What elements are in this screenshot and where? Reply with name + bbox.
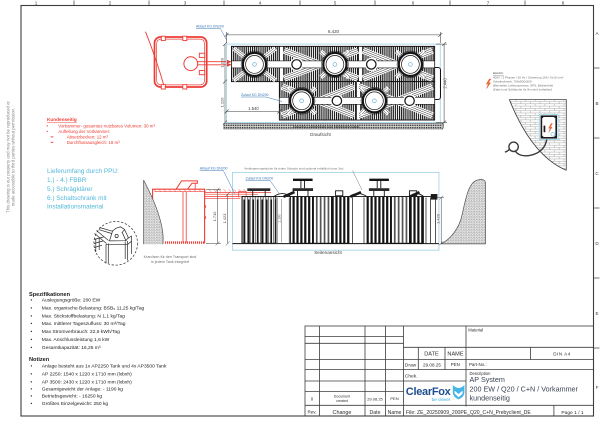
svg-text:[Kabel und Schläuche für 8m si: [Kabel und Schläuche für 8m sind enthalt… <box>493 88 552 92</box>
svg-text:NAME: NAME <box>447 351 463 357</box>
svg-text:Aufteilung der Vorkammer:: Aufteilung der Vorkammer: <box>58 129 110 134</box>
svg-text:Auslegungsgröße: 200 EW: Auslegungsgröße: 200 EW <box>42 298 101 304</box>
svg-text:Durchflussausgleich: 18 m³: Durchflussausgleich: 18 m³ <box>67 140 120 145</box>
svg-text:8: 8 <box>562 0 565 5</box>
svg-text:Betriebsgewicht: - 16250 kg: Betriebsgewicht: - 16250 kg <box>42 394 103 400</box>
svg-text:DIN A4: DIN A4 <box>553 351 571 356</box>
svg-text:Draufsicht: Draufsicht <box>310 132 331 137</box>
svg-text:1.423: 1.423 <box>222 214 227 224</box>
svg-text:3: 3 <box>184 0 187 5</box>
svg-text:Max Stromverbrauch: 22,5 kWh/T: Max Stromverbrauch: 22,5 kWh/Tag <box>42 329 120 335</box>
svg-text:1.190: 1.190 <box>277 214 281 223</box>
svg-text:Max. mittlerer Tageszufluss: 3: Max. mittlerer Tageszufluss: 30 m³/Tag <box>42 321 126 327</box>
svg-text:•: • <box>31 338 33 343</box>
svg-text:Verlängerungsstücke für jeden: Verlängerungsstücke für jeden Schacht si… <box>244 166 343 170</box>
svg-text:1.420: 1.420 <box>435 213 440 224</box>
svg-text:be clever: be clever <box>432 397 451 402</box>
svg-text:••: •• <box>51 134 55 139</box>
svg-text:•: • <box>31 388 33 393</box>
svg-text:Name: Name <box>388 410 402 416</box>
svg-text:29.08.25: 29.08.25 <box>367 396 383 401</box>
svg-text:1.220: 1.220 <box>220 57 225 68</box>
svg-text:•: • <box>47 129 49 134</box>
svg-text:AP 3500: 2430 x 1220 x 1710 mm: AP 3500: 2430 x 1220 x 1710 mm (lxbxh) <box>42 379 132 385</box>
svg-text:Größtes Einzelgewicht: 250 kg: Größtes Einzelgewicht: 250 kg <box>42 401 109 407</box>
svg-text:kundenseitig: kundenseitig <box>470 394 510 403</box>
svg-text:AP 2250: 1540 x 1220 x 1710 mm: AP 2250: 1540 x 1220 x 1710 mm (lxbxh) <box>42 372 132 378</box>
svg-text:Max. Anschlussleistung 1,6 kW: Max. Anschlussleistung 1,6 kW <box>42 337 110 343</box>
svg-text:Rev.: Rev. <box>307 410 316 415</box>
svg-text:Draw: Draw <box>405 363 417 369</box>
svg-text:•: • <box>31 314 33 319</box>
svg-text:7: 7 <box>487 0 490 5</box>
svg-text:•: • <box>31 365 33 370</box>
svg-text:••: •• <box>51 140 55 145</box>
svg-text:PEN: PEN <box>390 396 398 401</box>
svg-text:in jedem Tank integriert: in jedem Tank integriert <box>151 260 189 264</box>
svg-text:Date: Date <box>370 410 381 416</box>
svg-text:B: B <box>595 101 598 106</box>
svg-text:Absetzbecken: 12 m³: Absetzbecken: 12 m³ <box>67 134 109 139</box>
svg-text:1.220: 1.220 <box>220 97 225 108</box>
svg-text:created: created <box>336 399 348 403</box>
svg-text:made accessible to third parti: made accessible to third parties without… <box>11 108 16 206</box>
svg-text:2: 2 <box>109 0 112 5</box>
svg-text:1.) - 4.) FBBR: 1.) - 4.) FBBR <box>47 177 87 184</box>
svg-text:0: 0 <box>311 396 314 401</box>
svg-text:•: • <box>31 322 33 327</box>
svg-text:F: F <box>596 385 599 390</box>
svg-text:File: ZE_20250909_200PE_Q20_C: File: ZE_20250909_200PE_Q20_C+N_Prebycli… <box>406 410 531 416</box>
svg-text:PEN: PEN <box>451 362 460 367</box>
svg-text:•: • <box>31 299 33 304</box>
svg-text:AP System: AP System <box>470 375 505 384</box>
svg-text:Seitenansicht: Seitenansicht <box>314 250 342 255</box>
svg-text:•: • <box>47 123 49 128</box>
svg-text:Chek.: Chek. <box>405 374 418 380</box>
svg-text:6.420: 6.420 <box>328 29 340 34</box>
svg-text:C: C <box>595 171 599 176</box>
svg-text:Ablauf KG DN200: Ablauf KG DN200 <box>196 25 224 29</box>
svg-text:Part-No.:: Part-No.: <box>469 362 487 367</box>
svg-text:Ablauf KG DN200: Ablauf KG DN200 <box>200 166 228 170</box>
svg-text:1.540: 1.540 <box>248 106 259 111</box>
svg-text:29.08.25: 29.08.25 <box>423 362 441 367</box>
svg-text:•: • <box>31 330 33 335</box>
svg-text:E: E <box>595 311 598 316</box>
svg-text:Gesamtkapazität: 16,25 m³: Gesamtkapazität: 16,25 m³ <box>42 345 101 351</box>
svg-text:Kanal für Luftschläuch und ele: Kanal für Luftschläuch und elektrische k… <box>293 125 360 129</box>
svg-text:Anlage besteht aus 1x AP2250 T: Anlage besteht aus 1x AP2250 Tank und 4x… <box>42 364 167 370</box>
svg-text:200 EW / Q20 / C+N / Vorkammer: 200 EW / Q20 / C+N / Vorkammer <box>470 385 579 394</box>
svg-text:Zulauf KG DN200: Zulauf KG DN200 <box>246 177 274 181</box>
svg-text:•: • <box>31 307 33 312</box>
svg-text:6.) Schaltschrank mit: 6.) Schaltschrank mit <box>47 195 107 202</box>
svg-text:Gesamtgewicht der Anlage: - 11: Gesamtgewicht der Anlage: - 1190 kg <box>42 387 123 393</box>
svg-text:Zulauf KG DN200: Zulauf KG DN200 <box>241 93 269 97</box>
svg-text:Page 1 / 1: Page 1 / 1 <box>561 410 584 416</box>
svg-text:Kranösen für den Transport sin: Kranösen für den Transport sind <box>144 255 197 259</box>
svg-text:6: 6 <box>412 0 415 5</box>
svg-text:•: • <box>31 346 33 351</box>
svg-text:DATE: DATE <box>424 351 439 357</box>
svg-text:Installationsmaterial: Installationsmaterial <box>47 204 103 211</box>
svg-text:Material: Material <box>468 328 483 333</box>
svg-text:•: • <box>31 395 33 400</box>
svg-text:1: 1 <box>35 0 38 5</box>
svg-text:Change: Change <box>333 410 352 416</box>
svg-text:5: 5 <box>334 0 337 5</box>
svg-text:Max. Stickstoffbelastung: N 1,: Max. Stickstoffbelastung: N 1,1 kg/Tag <box>42 313 125 319</box>
svg-text:Lieferumfang durch PPU:: Lieferumfang durch PPU: <box>47 168 119 175</box>
svg-text:Max. organische Belastung: BSB: Max. organische Belastung: BSB₅ 11,25 kg… <box>42 306 145 312</box>
svg-text:1.710: 1.710 <box>212 211 217 222</box>
svg-text:4: 4 <box>259 0 262 5</box>
svg-text:A: A <box>595 31 599 36</box>
svg-text:Kundenseitig: Kundenseitig <box>47 117 77 122</box>
svg-text:Spezifikationen: Spezifikationen <box>29 292 71 298</box>
svg-text:•: • <box>31 373 33 378</box>
svg-text:Vorkammer- gesamtes nutzbares: Vorkammer- gesamtes nutzbares Volumen: 3… <box>58 123 155 128</box>
svg-text:•: • <box>31 402 33 407</box>
svg-text:Notizen: Notizen <box>29 357 50 363</box>
svg-text:D: D <box>595 241 599 246</box>
svg-text:5.) Schrägklärer: 5.) Schrägklärer <box>47 186 93 193</box>
svg-text:•: • <box>31 380 33 385</box>
svg-text:2.440: 2.440 <box>442 77 447 88</box>
